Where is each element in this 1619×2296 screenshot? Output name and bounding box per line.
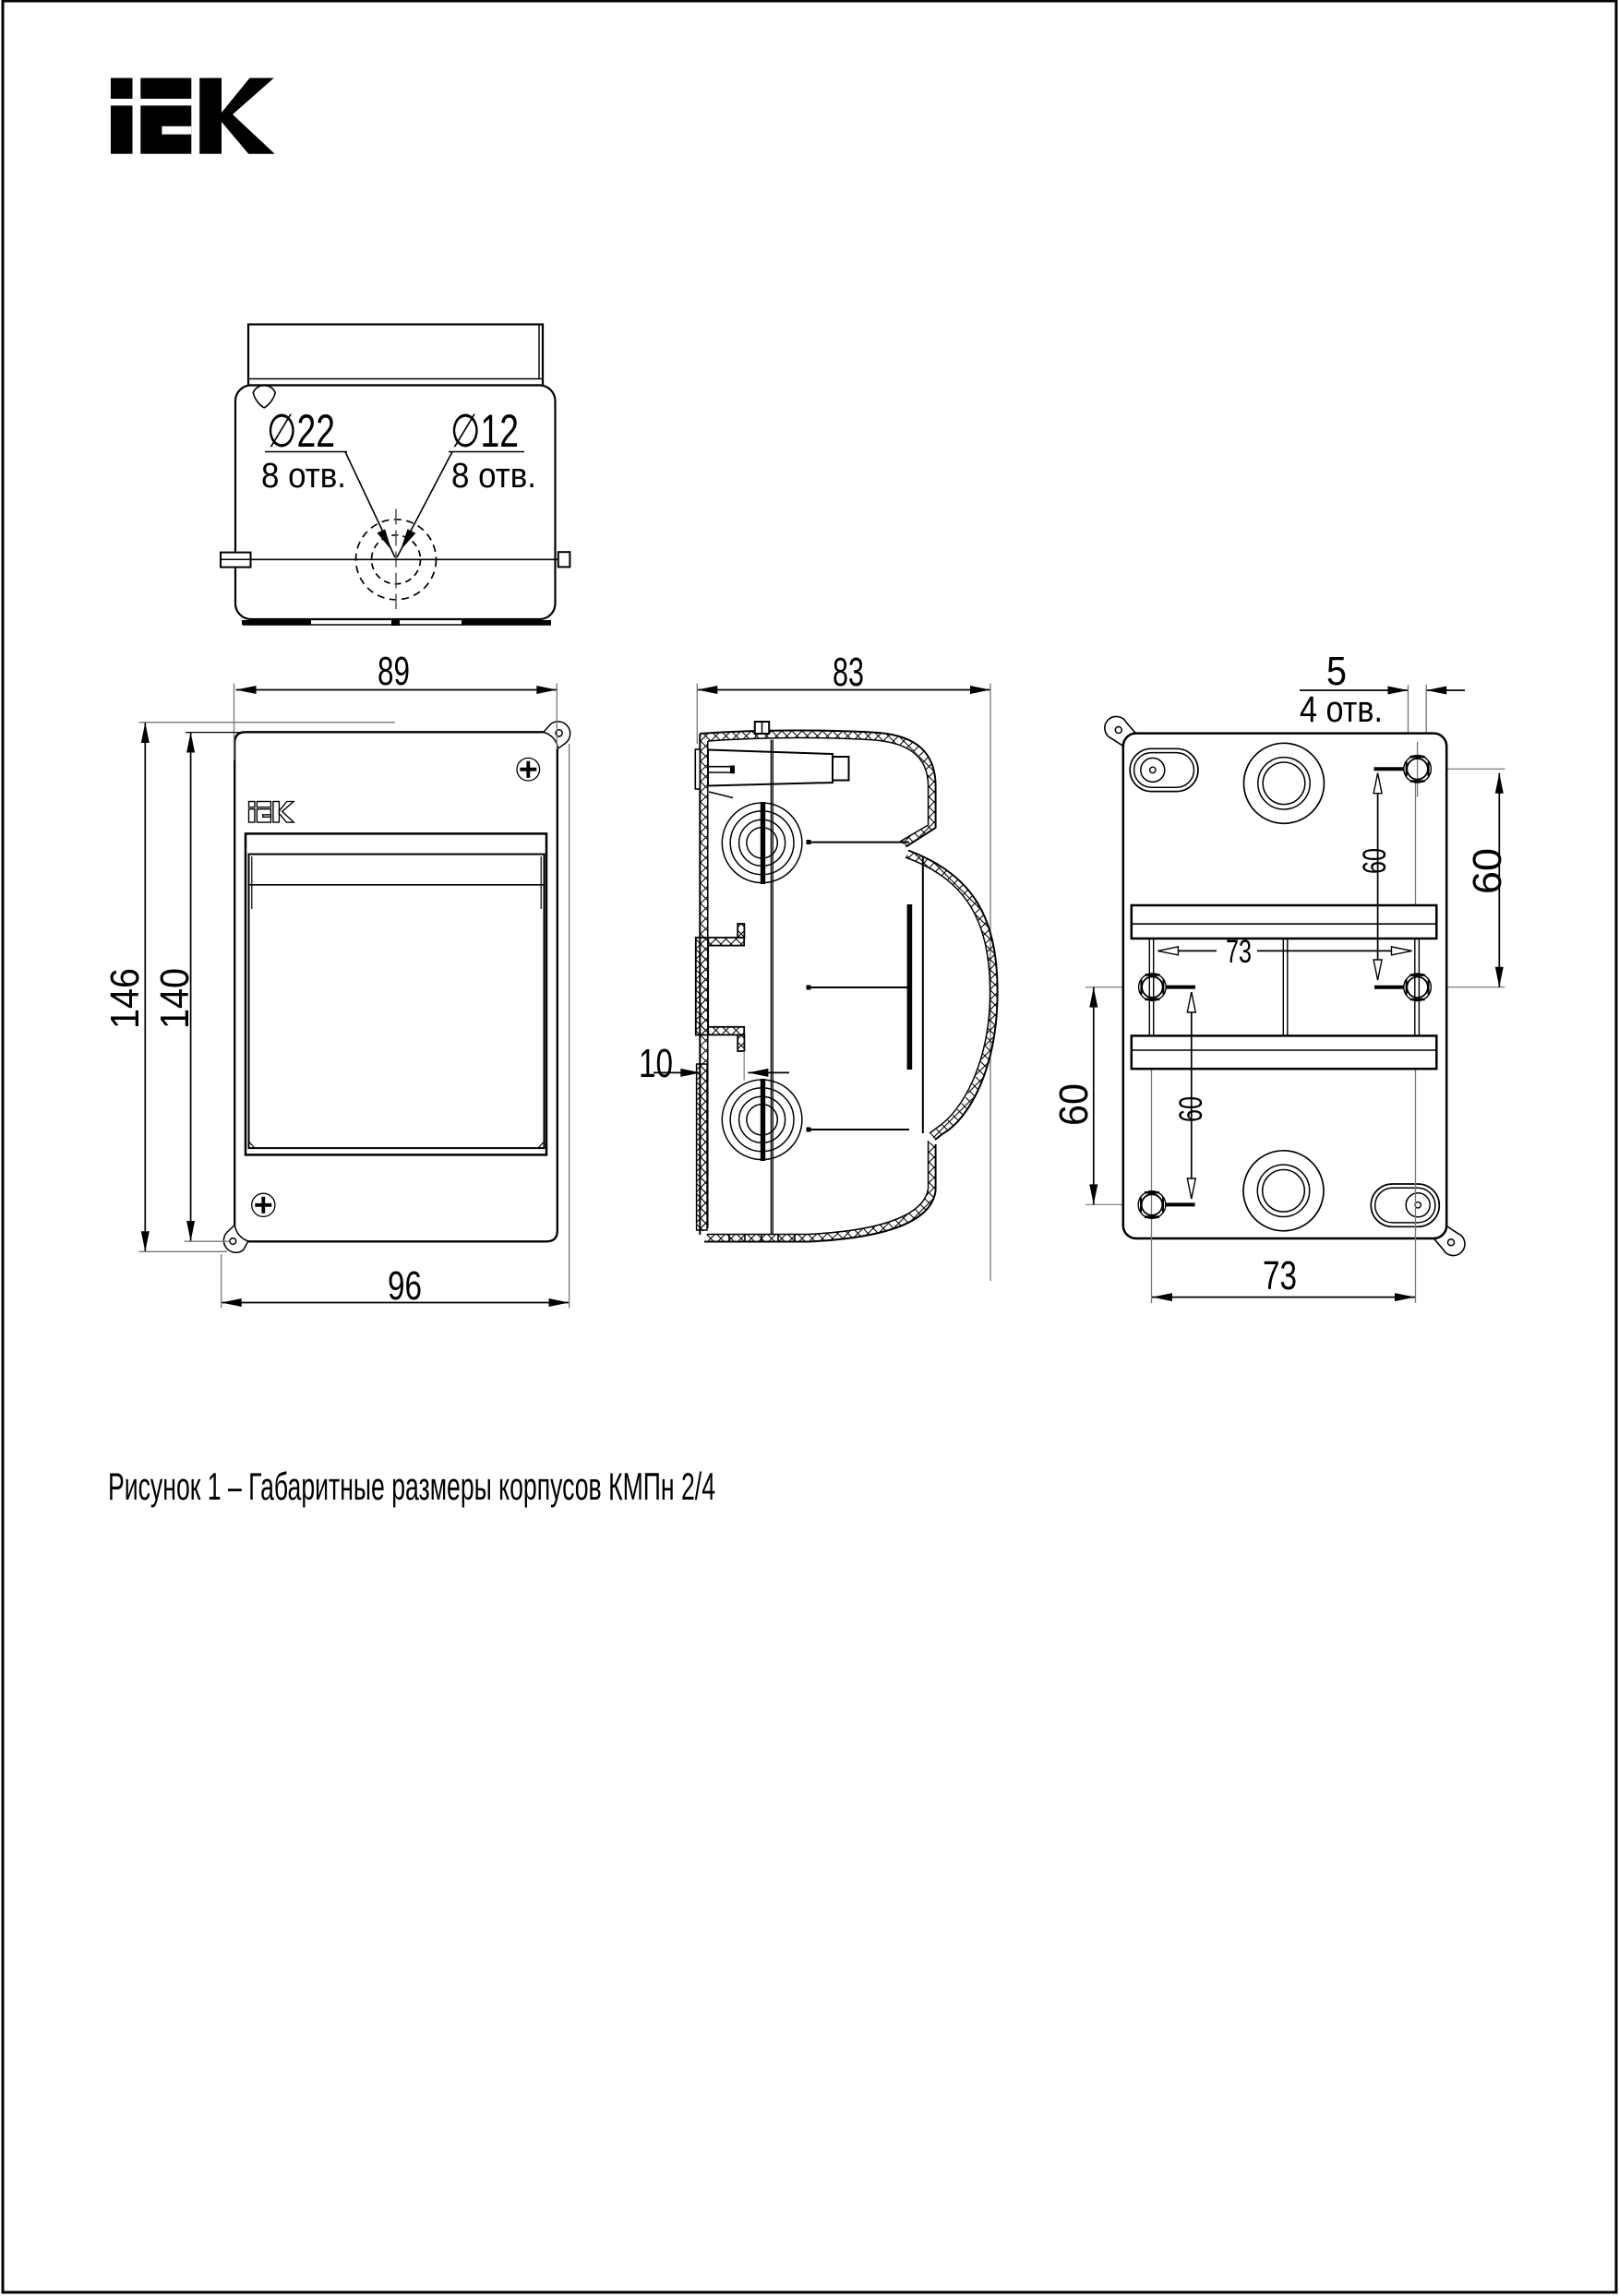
svg-text:∅12: ∅12	[450, 405, 519, 457]
svg-text:10: 10	[639, 1041, 673, 1086]
svg-text:∅22: ∅22	[267, 405, 335, 457]
svg-text:5: 5	[1326, 649, 1347, 694]
svg-text:146: 146	[102, 968, 148, 1029]
svg-text:60: 60	[1357, 848, 1393, 874]
svg-text:8 отв.: 8 отв.	[261, 457, 346, 496]
svg-text:8 отв.: 8 отв.	[451, 457, 536, 496]
svg-text:60: 60	[1173, 1096, 1209, 1122]
svg-text:83: 83	[833, 650, 864, 695]
svg-text:60: 60	[1465, 848, 1510, 894]
svg-text:4 отв.: 4 отв.	[1300, 689, 1383, 730]
svg-text:60: 60	[1051, 1083, 1097, 1126]
svg-text:89: 89	[378, 649, 410, 694]
svg-text:73: 73	[1263, 1253, 1297, 1298]
svg-text:Рисунок 1 – Габаритные размеры: Рисунок 1 – Габаритные размеры корпусов …	[108, 1465, 715, 1508]
svg-text:73: 73	[1226, 934, 1252, 970]
